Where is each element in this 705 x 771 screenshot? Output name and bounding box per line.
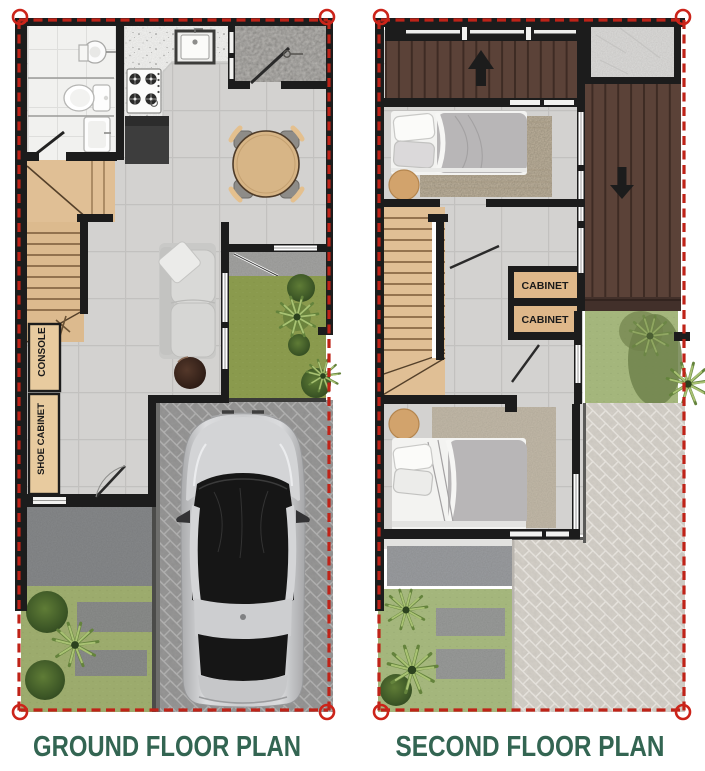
svg-text:CABINET: CABINET [522,314,570,326]
svg-text:CONSOLE: CONSOLE [37,327,48,377]
svg-text:GROUND FLOOR PLAN: GROUND FLOOR PLAN [33,731,301,763]
svg-text:SECOND FLOOR PLAN: SECOND FLOOR PLAN [396,731,665,763]
svg-text:SHOE CABINET: SHOE CABINET [36,403,47,475]
svg-text:CABINET: CABINET [522,280,570,292]
